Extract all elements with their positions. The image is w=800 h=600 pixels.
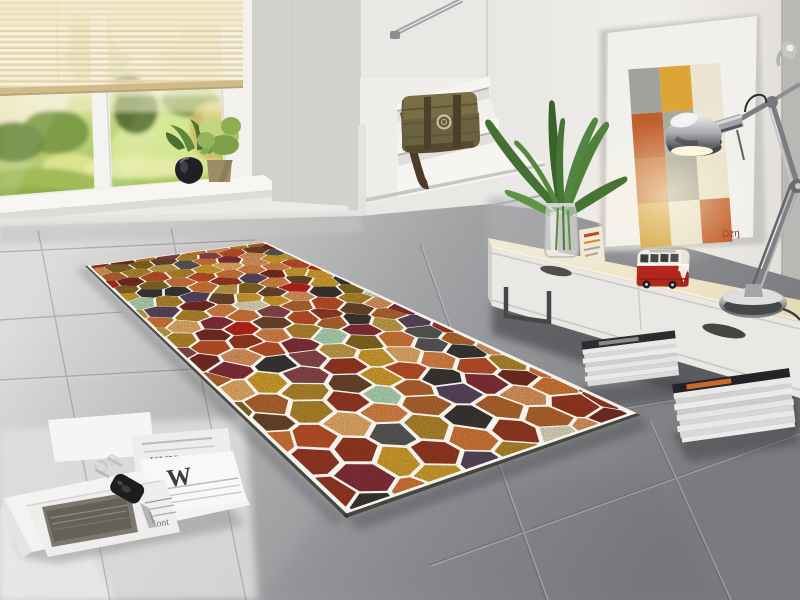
svg-text:W: W <box>165 463 194 493</box>
